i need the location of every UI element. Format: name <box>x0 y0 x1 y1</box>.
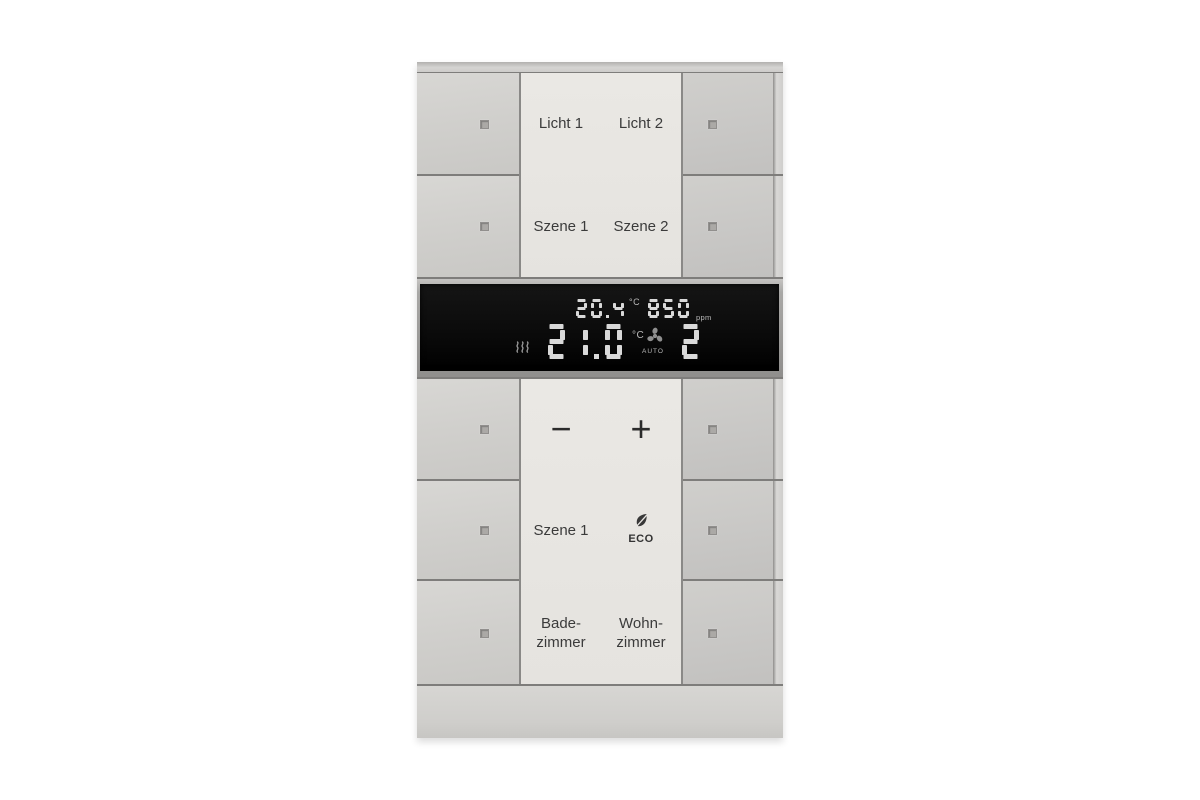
fan-stage-value <box>682 324 705 359</box>
label-szene-2[interactable]: Szene 2 <box>601 175 681 277</box>
label-badezimmer-line2: zimmer <box>536 633 585 652</box>
led-indicator <box>480 120 489 129</box>
rocker-button-row3-left[interactable] <box>417 378 519 480</box>
label-badezimmer-line1: Bade- <box>541 614 581 633</box>
divider <box>683 579 783 581</box>
label-badezimmer[interactable]: Bade- zimmer <box>521 580 601 685</box>
frame-bottom <box>417 685 783 738</box>
room-temperature-value <box>576 299 628 318</box>
divider <box>417 72 783 73</box>
label-wohnzimmer-line2: zimmer <box>616 633 665 652</box>
temperature-decrease-label[interactable]: − <box>521 378 601 480</box>
room-temperature-unit: °C <box>629 297 640 307</box>
temperature-increase-label[interactable]: + <box>601 378 681 480</box>
eco-leaf-icon <box>632 512 650 529</box>
fan-icon <box>645 326 665 346</box>
fan-mode-label: AUTO <box>642 348 664 355</box>
led-indicator <box>708 222 717 231</box>
rocker-button-row2-left[interactable] <box>417 175 519 277</box>
divider <box>417 684 783 686</box>
divider <box>417 479 519 481</box>
divider <box>683 479 783 481</box>
rocker-button-row4-right[interactable] <box>683 480 773 580</box>
led-indicator <box>708 526 717 535</box>
led-indicator <box>708 629 717 638</box>
led-indicator <box>480 425 489 434</box>
room-temperature-controller: Licht 1 Licht 2 Szene 1 Szene 2 °C ppm <box>417 62 783 738</box>
air-quality-unit: ppm <box>696 313 712 322</box>
frame-top <box>417 62 783 72</box>
label-wohnzimmer[interactable]: Wohn- zimmer <box>601 580 681 685</box>
eco-text: ECO <box>628 530 653 549</box>
lower-label-panel: − + Szene 1 ECO Bade- <box>519 378 683 685</box>
label-licht-1[interactable]: Licht 1 <box>521 72 601 175</box>
label-szene-1-lower[interactable]: Szene 1 <box>521 480 601 580</box>
led-indicator <box>708 120 717 129</box>
divider <box>417 377 783 379</box>
divider <box>417 579 519 581</box>
led-indicator <box>480 526 489 535</box>
rocker-button-row1-left[interactable] <box>417 72 519 175</box>
setpoint-temperature-unit: °C <box>632 330 644 341</box>
rocker-button-row2-right[interactable] <box>683 175 773 277</box>
led-indicator <box>480 222 489 231</box>
lcd-screen: °C ppm °C <box>420 284 779 371</box>
eco-mode-label[interactable]: ECO <box>601 480 681 580</box>
label-wohnzimmer-line1: Wohn- <box>619 614 663 633</box>
product-photo-background: Licht 1 Licht 2 Szene 1 Szene 2 °C ppm <box>0 0 1200 800</box>
rocker-button-row5-left[interactable] <box>417 580 519 685</box>
rocker-button-row3-right[interactable] <box>683 378 773 480</box>
divider <box>683 174 783 176</box>
setpoint-temperature-value <box>548 324 628 359</box>
rocker-button-row4-left[interactable] <box>417 480 519 580</box>
divider <box>417 277 783 279</box>
divider <box>417 174 519 176</box>
led-indicator <box>708 425 717 434</box>
led-indicator <box>480 629 489 638</box>
rocker-button-row5-right[interactable] <box>683 580 773 685</box>
upper-label-panel: Licht 1 Licht 2 Szene 1 Szene 2 <box>519 72 683 277</box>
frame-right-edge <box>773 378 783 685</box>
label-szene-1[interactable]: Szene 1 <box>521 175 601 277</box>
rocker-button-row1-right[interactable] <box>683 72 773 175</box>
heating-waves-icon <box>515 341 531 355</box>
thermostat-display: °C ppm °C <box>417 277 783 378</box>
air-quality-value <box>648 299 693 318</box>
label-licht-2[interactable]: Licht 2 <box>601 72 681 175</box>
